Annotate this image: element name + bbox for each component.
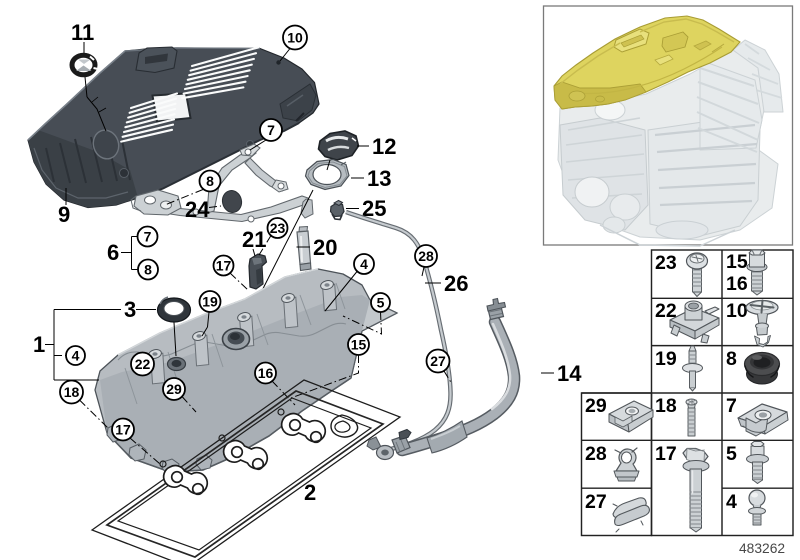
svg-text:15: 15 — [726, 251, 748, 273]
svg-text:10: 10 — [726, 300, 748, 322]
svg-text:14: 14 — [557, 361, 582, 386]
svg-text:7: 7 — [144, 229, 152, 245]
svg-text:5: 5 — [726, 443, 737, 465]
svg-text:3: 3 — [124, 297, 136, 322]
svg-text:483262: 483262 — [739, 541, 785, 556]
svg-text:16: 16 — [726, 273, 748, 295]
svg-text:15: 15 — [351, 337, 367, 353]
svg-text:17: 17 — [115, 422, 131, 438]
svg-text:4: 4 — [360, 256, 368, 272]
svg-text:12: 12 — [372, 134, 396, 159]
svg-text:7: 7 — [726, 395, 737, 417]
svg-text:23: 23 — [655, 252, 677, 274]
svg-text:17: 17 — [216, 258, 232, 274]
svg-text:8: 8 — [726, 348, 737, 370]
svg-text:22: 22 — [135, 356, 151, 372]
svg-text:19: 19 — [655, 348, 677, 370]
svg-text:2: 2 — [304, 480, 316, 505]
svg-text:13: 13 — [367, 166, 391, 191]
svg-text:1: 1 — [33, 332, 45, 357]
svg-text:27: 27 — [585, 491, 607, 513]
svg-text:28: 28 — [418, 248, 434, 264]
svg-text:5: 5 — [377, 295, 385, 311]
svg-text:19: 19 — [202, 294, 218, 310]
svg-text:10: 10 — [287, 30, 303, 46]
svg-text:8: 8 — [144, 262, 152, 278]
svg-text:29: 29 — [166, 381, 182, 397]
svg-text:21: 21 — [242, 227, 266, 252]
svg-text:7: 7 — [267, 122, 275, 138]
svg-text:18: 18 — [64, 384, 80, 400]
svg-text:26: 26 — [444, 271, 468, 296]
svg-text:4: 4 — [72, 348, 80, 364]
svg-text:4: 4 — [726, 491, 737, 513]
svg-text:6: 6 — [107, 240, 119, 265]
svg-text:11: 11 — [71, 20, 94, 45]
svg-text:27: 27 — [430, 353, 446, 369]
svg-text:28: 28 — [585, 443, 607, 465]
svg-text:17: 17 — [655, 443, 677, 465]
svg-text:24: 24 — [185, 197, 210, 222]
svg-text:20: 20 — [313, 235, 337, 260]
svg-text:9: 9 — [58, 202, 70, 227]
svg-text:23: 23 — [270, 220, 286, 236]
svg-text:29: 29 — [585, 395, 607, 417]
svg-text:18: 18 — [655, 395, 677, 417]
svg-text:8: 8 — [206, 173, 214, 189]
svg-text:16: 16 — [258, 365, 274, 381]
